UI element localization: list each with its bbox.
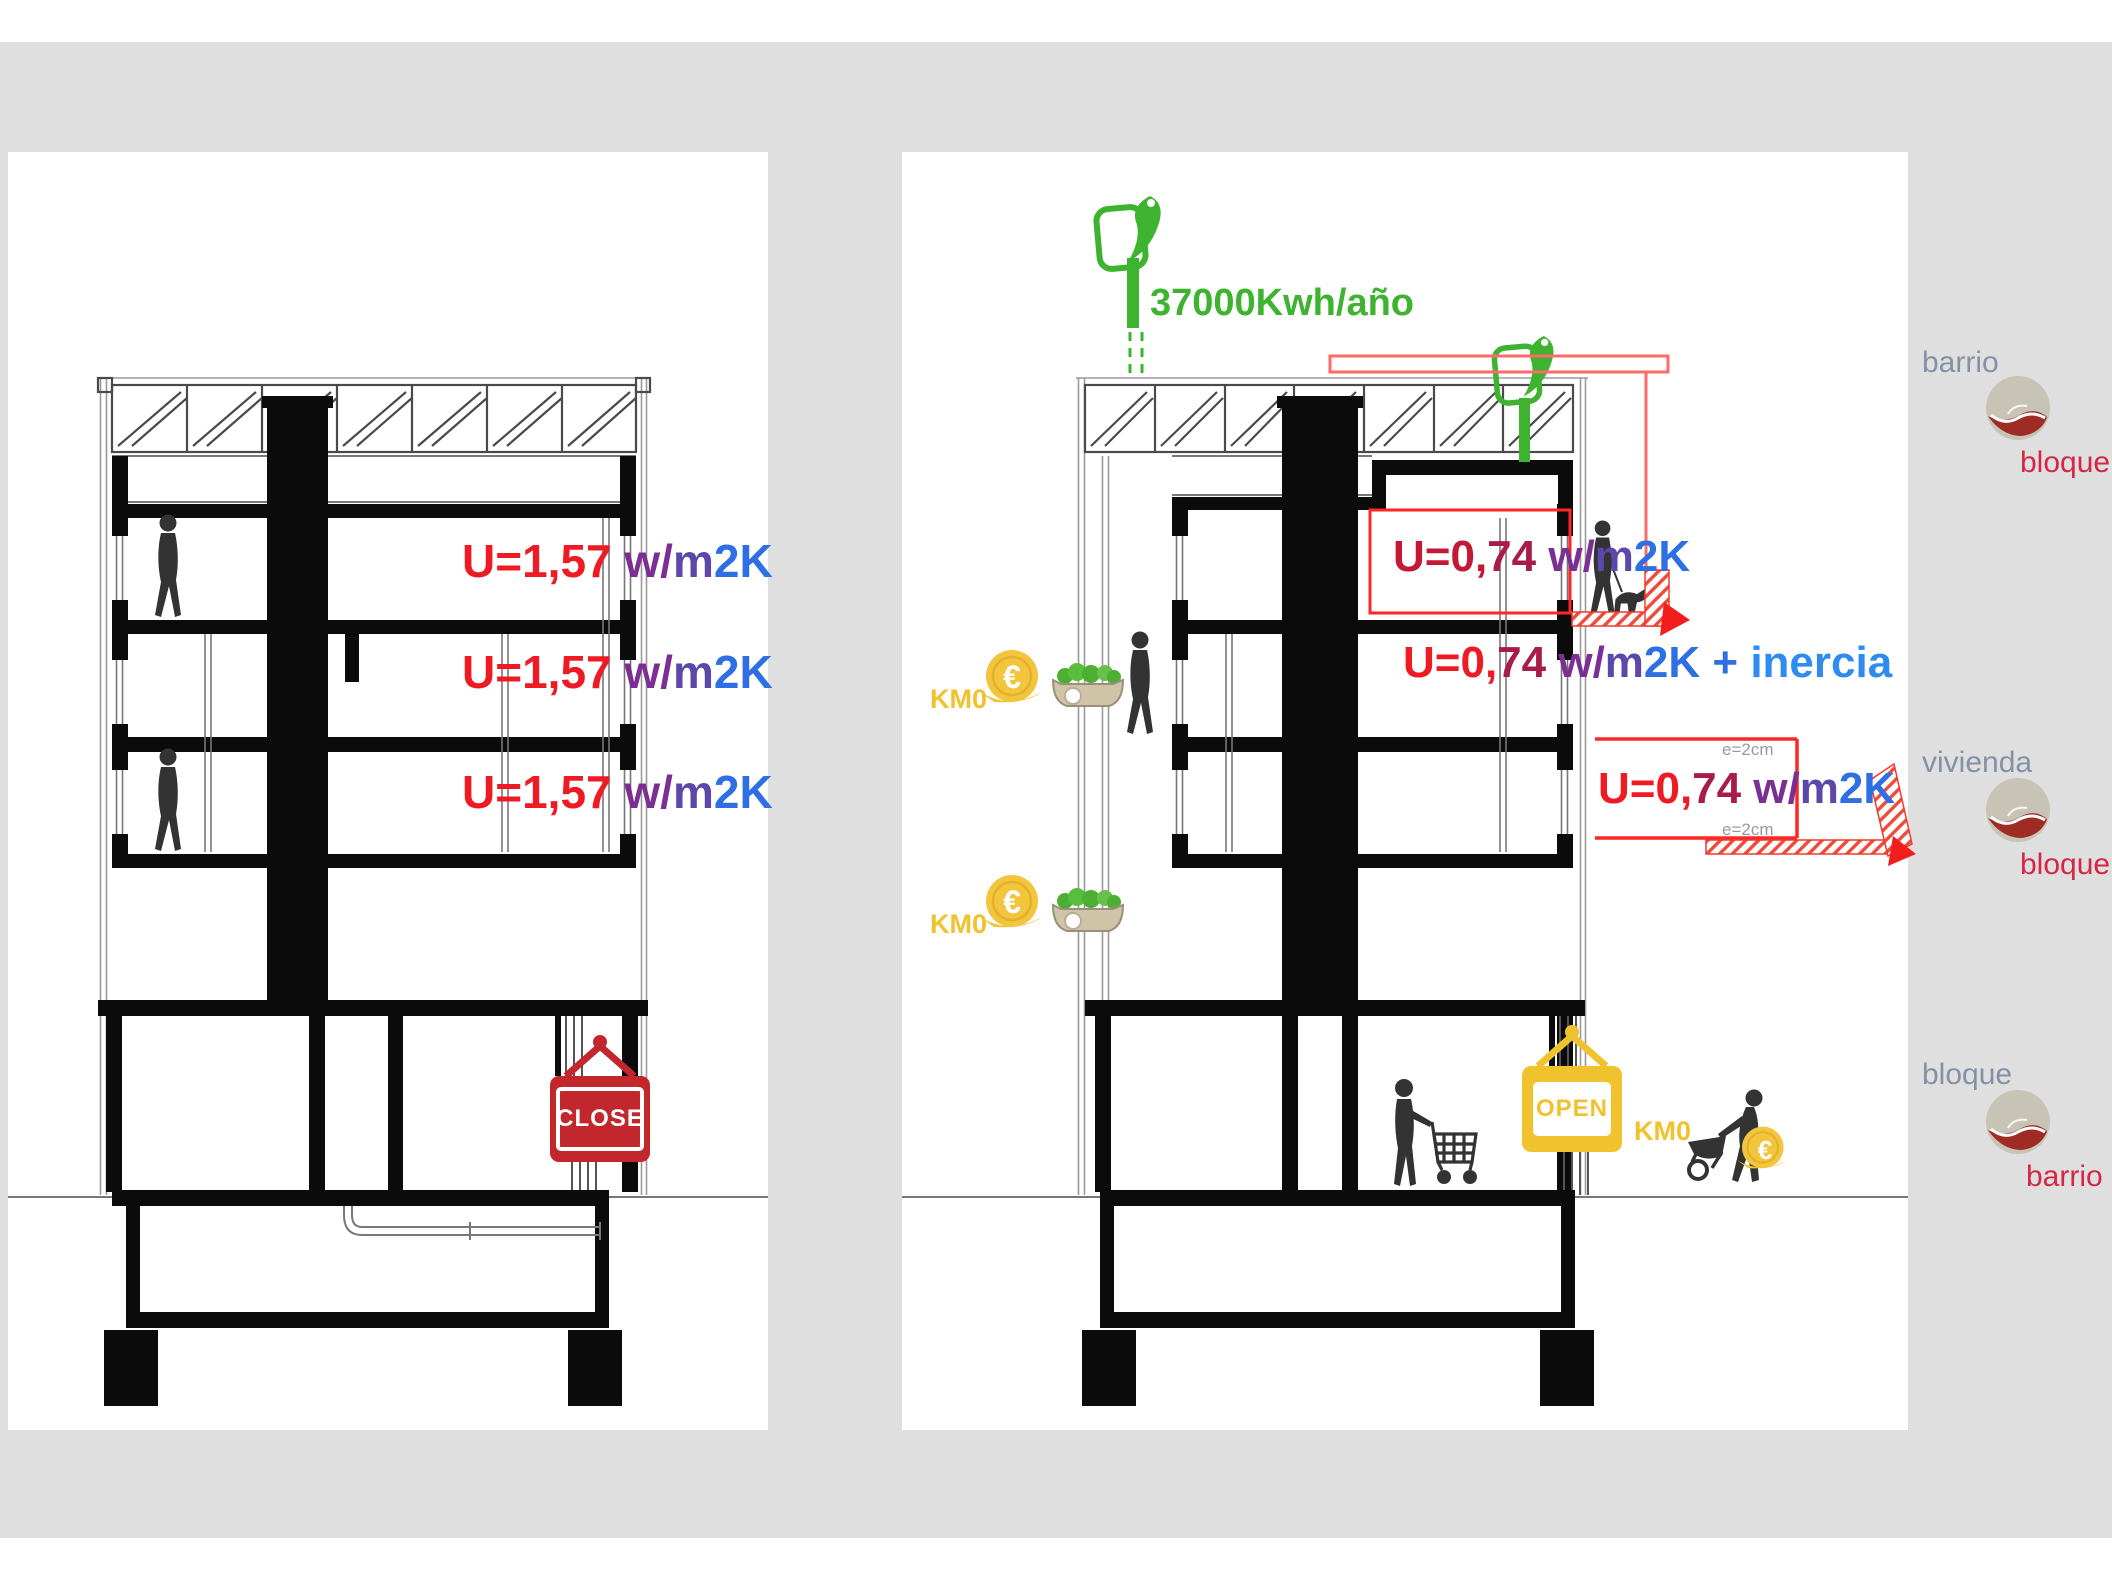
km0-label: KM0 bbox=[1634, 1116, 1691, 1147]
person-icon bbox=[155, 749, 181, 852]
legend-scale-label: barrio bbox=[1922, 346, 1999, 380]
swirl-logo-icon bbox=[1986, 1090, 2050, 1154]
thickness-label: e=2cm bbox=[1722, 820, 1774, 840]
close-sign-label: CLOSE bbox=[556, 1087, 644, 1151]
u-value-label: U=1,57 w/m2K bbox=[462, 765, 773, 819]
wind-energy-label: 37000Kwh/año bbox=[1150, 282, 1414, 325]
open-sign: OPEN bbox=[1522, 1066, 1622, 1152]
u-value-label: U=0,74 w/m2K bbox=[1393, 532, 1690, 582]
roof-truss bbox=[98, 378, 650, 452]
person-icon bbox=[1127, 632, 1153, 735]
legend-scale-label: barrio bbox=[2026, 1160, 2103, 1194]
km0-label: KM0 bbox=[930, 909, 987, 940]
planter-box-icon bbox=[1053, 888, 1123, 931]
legend-scale-label: vivienda bbox=[1922, 746, 2032, 780]
u-value: U=1,57 bbox=[462, 535, 624, 587]
euro-symbol: € bbox=[992, 659, 1032, 696]
thickness-label: e=2cm bbox=[1722, 740, 1774, 760]
u-value-label: U=1,57 w/m2K bbox=[462, 645, 773, 699]
u-value-label: U=1,57 w/m2K bbox=[462, 534, 773, 588]
close-sign: CLOSE bbox=[550, 1076, 650, 1162]
left-building-section bbox=[8, 378, 768, 1406]
u-value-label: U=0,74 w/m2K + inercia bbox=[1403, 638, 1892, 688]
person-with-shopping-cart-icon bbox=[1394, 1079, 1477, 1186]
insulation-arrow-icon bbox=[1660, 602, 1690, 636]
basement-drain-pipe bbox=[344, 1206, 600, 1240]
u-value-label: U=0,74 w/m2K bbox=[1598, 764, 1895, 814]
legend-scale-label: bloque bbox=[1922, 1058, 2012, 1092]
legend-scale-label: bloque bbox=[2020, 848, 2110, 882]
km0-label: KM0 bbox=[930, 684, 987, 715]
planter-box-icon bbox=[1053, 663, 1123, 706]
person-icon bbox=[155, 515, 181, 618]
swirl-logo-icon bbox=[1986, 376, 2050, 440]
legend-scale-label: bloque bbox=[2020, 446, 2110, 480]
euro-symbol: € bbox=[1747, 1135, 1783, 1166]
swirl-logo-icon bbox=[1986, 778, 2050, 842]
open-sign-label: OPEN bbox=[1533, 1082, 1611, 1136]
euro-symbol: € bbox=[992, 884, 1032, 921]
